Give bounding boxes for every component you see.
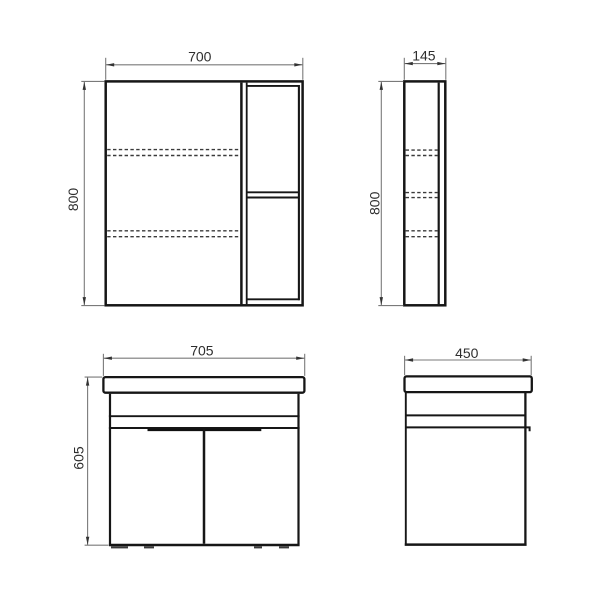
svg-text:700: 700 <box>188 49 212 65</box>
svg-text:450: 450 <box>455 345 479 361</box>
svg-text:705: 705 <box>190 343 214 359</box>
svg-text:145: 145 <box>412 47 436 63</box>
svg-text:800: 800 <box>367 191 383 215</box>
svg-text:800: 800 <box>65 188 81 212</box>
svg-text:605: 605 <box>70 446 86 470</box>
